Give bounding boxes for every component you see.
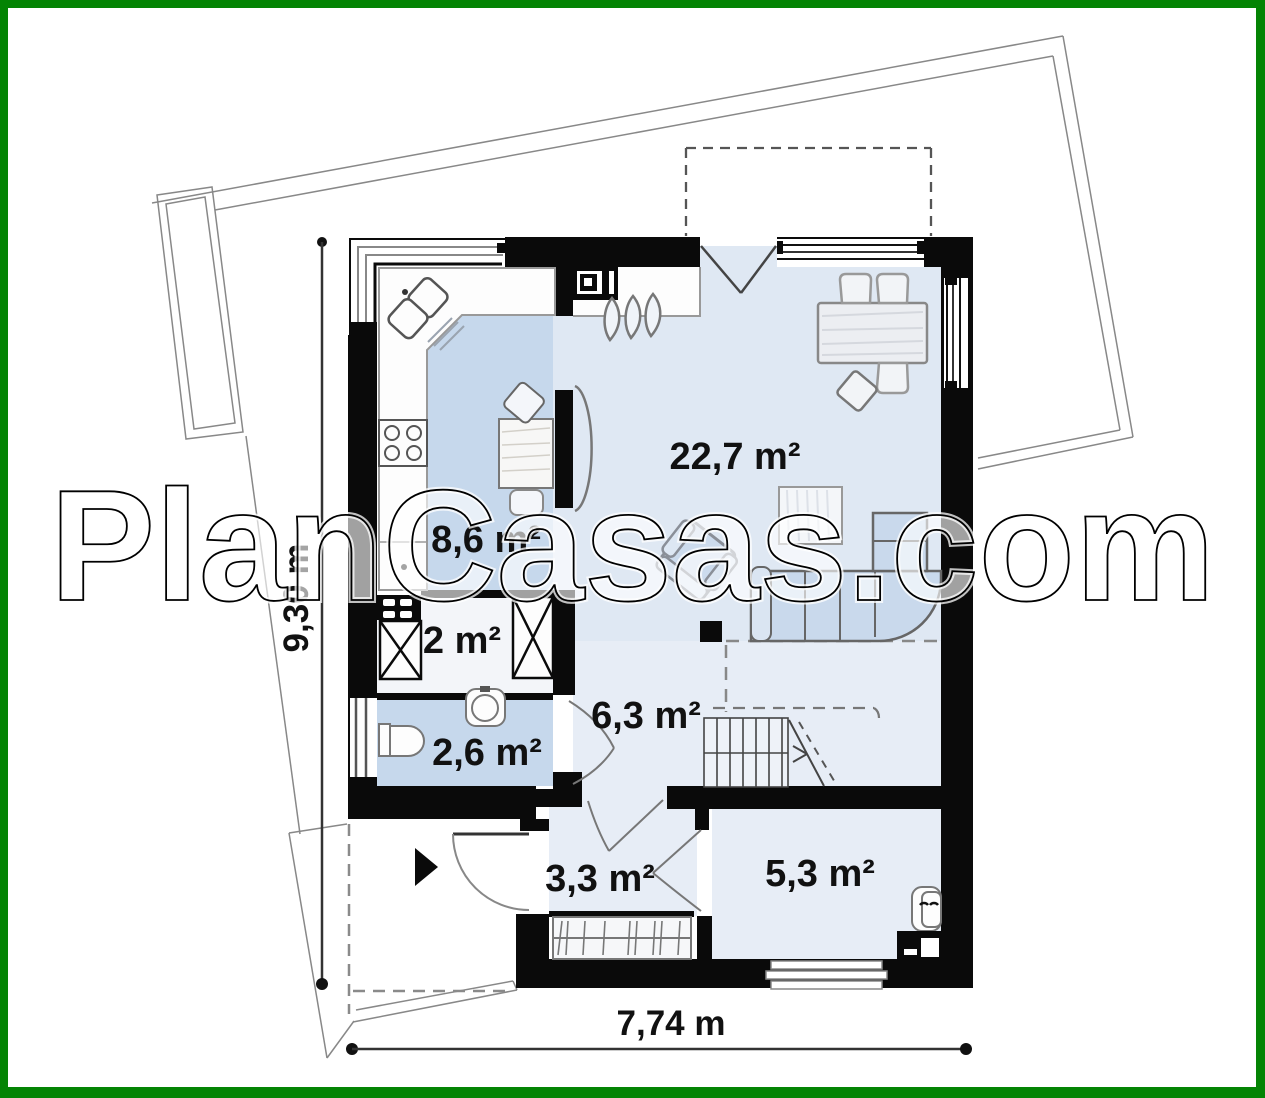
svg-text:3,3 m²: 3,3 m² [545, 858, 655, 900]
svg-text:7,74 m: 7,74 m [617, 1004, 726, 1043]
svg-text:6,3 m²: 6,3 m² [591, 695, 701, 737]
svg-text:5,3 m²: 5,3 m² [765, 853, 875, 895]
svg-text:2,6 m²: 2,6 m² [432, 732, 542, 774]
svg-text:PlanCasas.com: PlanCasas.com [50, 458, 1215, 634]
